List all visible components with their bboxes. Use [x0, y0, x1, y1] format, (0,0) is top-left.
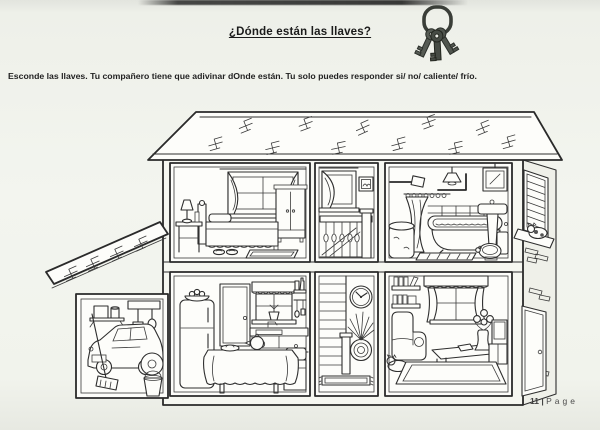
worksheet-page: ¿Dónde están las llaves? Esconde las lla…	[0, 0, 600, 430]
landing	[315, 163, 378, 262]
plate	[221, 345, 239, 351]
staircase-room	[315, 272, 378, 396]
garage	[76, 294, 168, 398]
tv	[489, 320, 507, 364]
page-footer: 11 | Page	[530, 396, 578, 406]
garage-roof	[46, 222, 168, 288]
laundry-bin	[389, 222, 414, 258]
side-door	[522, 306, 546, 396]
kitchen-door	[220, 284, 250, 346]
license-plate	[92, 355, 106, 362]
newel-post	[342, 336, 350, 374]
pillow	[209, 214, 231, 222]
keys-icon	[415, 7, 459, 61]
wall-clock	[350, 286, 372, 308]
bedroom-rug	[246, 250, 298, 258]
living-room	[385, 272, 512, 396]
spare-tire	[141, 353, 163, 375]
main-roof	[148, 112, 562, 160]
bath-mat	[416, 253, 476, 260]
bottle	[195, 212, 199, 222]
landing-window	[319, 168, 359, 212]
stairs-rug	[319, 376, 373, 385]
living-rug	[396, 362, 506, 384]
picture-frame	[359, 177, 373, 191]
bathroom	[385, 163, 512, 262]
page-number: 11 |	[530, 396, 546, 406]
wardrobe	[274, 185, 307, 242]
box	[94, 306, 108, 318]
kitchen-window	[252, 282, 296, 324]
mirror	[483, 164, 507, 191]
bedroom	[170, 163, 310, 262]
kitchen	[170, 272, 310, 396]
page-word: Page	[546, 396, 578, 406]
house-illustration	[0, 0, 600, 430]
